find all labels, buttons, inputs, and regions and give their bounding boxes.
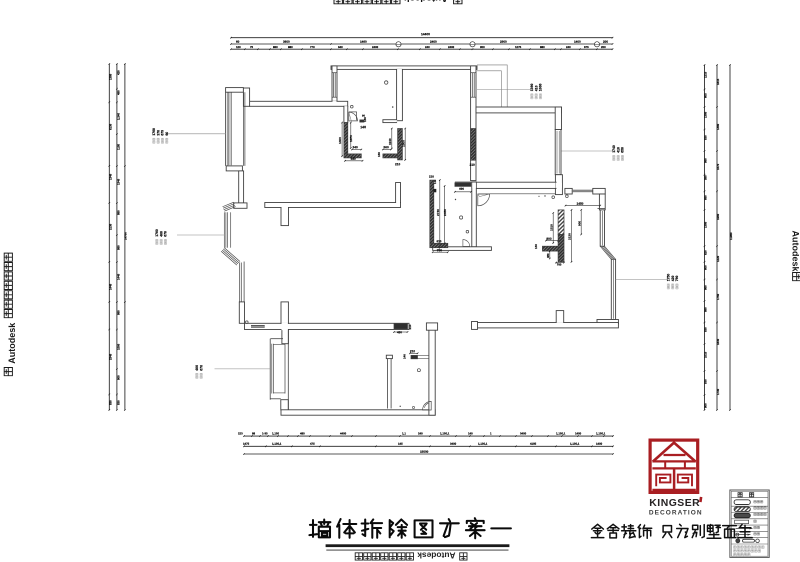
svg-text:1,130: 1,130 (272, 431, 279, 435)
svg-text:120: 120 (236, 45, 241, 49)
svg-text:1380: 1380 (716, 123, 720, 130)
svg-text:Autodesk: Autodesk (791, 231, 800, 273)
svg-text:2130: 2130 (109, 223, 113, 230)
svg-text:900: 900 (480, 45, 485, 49)
svg-text:475: 475 (310, 442, 315, 446)
svg-text:800: 800 (546, 237, 551, 241)
svg-text:KINGSER: KINGSER (649, 498, 700, 509)
svg-text:2450: 2450 (443, 209, 447, 216)
svg-text:1450: 1450 (576, 202, 583, 206)
svg-text:200: 200 (601, 45, 606, 49)
svg-text:1140: 1140 (388, 138, 392, 145)
svg-text:130: 130 (363, 117, 367, 122)
svg-text:Autodesk: Autodesk (404, 0, 448, 4)
svg-text:1,130,1: 1,130,1 (570, 442, 580, 446)
svg-text:1570: 1570 (716, 163, 720, 170)
svg-text:DECORATION: DECORATION (649, 510, 703, 517)
svg-text:1150: 1150 (116, 143, 120, 150)
svg-text:340: 340 (352, 145, 357, 149)
svg-text:2400: 2400 (430, 40, 437, 44)
svg-text:60: 60 (236, 40, 240, 44)
svg-text:15000: 15000 (420, 450, 429, 454)
svg-text:750: 750 (437, 248, 442, 252)
svg-text:140: 140 (403, 354, 407, 359)
svg-text:Autodesk: Autodesk (7, 322, 17, 364)
svg-text:1-30: 1-30 (262, 431, 268, 435)
svg-text:880: 880 (116, 210, 120, 215)
svg-text:1830: 1830 (716, 338, 720, 345)
svg-text:605: 605 (704, 93, 708, 98)
svg-text:590: 590 (704, 175, 708, 180)
svg-text:860: 860 (273, 45, 278, 49)
svg-text:3400: 3400 (450, 442, 457, 446)
svg-text:1,130,1: 1,130,1 (440, 431, 450, 435)
svg-text:60: 60 (165, 132, 169, 136)
svg-text:1400: 1400 (575, 431, 582, 435)
svg-text:830: 830 (116, 400, 120, 405)
svg-text:3600: 3600 (283, 40, 290, 44)
svg-text:480: 480 (546, 253, 550, 258)
svg-text:420: 420 (116, 70, 120, 75)
svg-text:1750: 1750 (716, 293, 720, 300)
svg-text:1815: 1815 (716, 78, 720, 85)
svg-text:690: 690 (459, 187, 464, 191)
svg-text:1400: 1400 (596, 442, 603, 446)
svg-text:1220: 1220 (716, 255, 720, 262)
svg-text:880: 880 (288, 45, 293, 49)
svg-text:2900: 2900 (500, 40, 507, 44)
svg-text:1400: 1400 (574, 40, 581, 44)
svg-text:Autodesk: Autodesk (417, 551, 456, 561)
svg-text:2400: 2400 (448, 45, 455, 49)
svg-text:1340: 1340 (109, 173, 113, 180)
svg-text:240: 240 (425, 45, 430, 49)
svg-text:210: 210 (429, 175, 434, 179)
svg-text:140: 140 (360, 125, 366, 129)
svg-text:490: 490 (116, 90, 120, 95)
svg-text:1310: 1310 (549, 224, 553, 231)
svg-text:830: 830 (704, 135, 708, 140)
svg-text:140: 140 (433, 179, 437, 184)
svg-text:640: 640 (338, 45, 343, 49)
svg-text:480: 480 (300, 431, 305, 435)
svg-text:980: 980 (116, 310, 120, 315)
svg-text:1,130,1: 1,130,1 (596, 431, 606, 435)
svg-text:900: 900 (116, 375, 120, 380)
svg-text:880: 880 (540, 45, 545, 49)
svg-text:2,240: 2,240 (116, 113, 120, 120)
svg-text:1380: 1380 (109, 73, 113, 80)
svg-text:1730: 1730 (716, 388, 720, 395)
svg-text:1,130,1: 1,130,1 (556, 431, 566, 435)
svg-text:620: 620 (704, 250, 708, 255)
svg-text:223: 223 (238, 431, 243, 435)
svg-text:610: 610 (436, 239, 441, 243)
svg-text:14400: 14400 (421, 32, 430, 36)
svg-text:1010: 1010 (704, 351, 708, 358)
svg-text:1370: 1370 (349, 135, 353, 142)
svg-text:1460: 1460 (360, 40, 367, 44)
svg-text:145: 145 (398, 442, 403, 446)
svg-text:650: 650 (621, 147, 625, 153)
svg-text:680: 680 (351, 157, 356, 161)
svg-text:210: 210 (395, 162, 400, 166)
svg-text:1,130,1: 1,130,1 (272, 442, 282, 446)
svg-text:1475: 1475 (243, 442, 250, 446)
svg-text:1,1: 1,1 (402, 431, 406, 435)
svg-text:140: 140 (468, 431, 473, 435)
svg-text:1380: 1380 (704, 111, 708, 118)
svg-text:770: 770 (310, 45, 315, 49)
svg-text:11960: 11960 (729, 232, 733, 240)
svg-text:1210: 1210 (704, 71, 708, 78)
svg-text:830: 830 (109, 400, 113, 405)
svg-text:600: 600 (704, 265, 708, 270)
svg-text:680: 680 (704, 195, 708, 200)
svg-text:1960: 1960 (716, 213, 720, 220)
svg-text:140: 140 (534, 244, 538, 249)
svg-text:3400: 3400 (520, 431, 527, 435)
svg-text:2400: 2400 (372, 45, 379, 49)
svg-text:1340: 1340 (116, 178, 120, 185)
svg-text:980: 980 (116, 245, 120, 250)
svg-text:560: 560 (383, 145, 388, 149)
svg-text:1000: 1000 (539, 84, 543, 92)
svg-text:830: 830 (704, 327, 708, 332)
svg-text:88: 88 (252, 431, 256, 435)
svg-text:1300: 1300 (402, 140, 406, 147)
svg-text:890: 890 (704, 307, 708, 312)
svg-text:1380: 1380 (704, 221, 708, 228)
svg-text:4195: 4195 (530, 442, 537, 446)
svg-text:980: 980 (704, 158, 708, 163)
svg-text:860: 860 (704, 285, 708, 290)
svg-text:75: 75 (250, 45, 254, 49)
svg-text:210: 210 (408, 324, 412, 329)
svg-text:1275: 1275 (515, 45, 522, 49)
svg-text:240: 240 (418, 431, 423, 435)
svg-text:1440: 1440 (116, 273, 120, 280)
svg-text:210: 210 (470, 163, 475, 167)
svg-text:2740: 2740 (436, 209, 440, 216)
svg-text:6130: 6130 (109, 123, 113, 130)
svg-text:700: 700 (557, 263, 562, 267)
svg-text:14700: 14700 (124, 232, 128, 240)
svg-text:1440: 1440 (109, 283, 113, 290)
svg-text:900: 900 (577, 221, 581, 226)
svg-text:1500: 1500 (116, 343, 120, 350)
svg-text:1,130,1: 1,130,1 (478, 442, 488, 446)
svg-text:670: 670 (164, 231, 168, 237)
svg-text:670: 670 (199, 365, 203, 371)
svg-text:240: 240 (566, 45, 571, 49)
svg-text:675: 675 (584, 45, 589, 49)
svg-text:4400: 4400 (340, 431, 347, 435)
svg-text:900: 900 (704, 403, 708, 408)
svg-text:930: 930 (704, 379, 708, 384)
svg-text:1400: 1400 (338, 137, 342, 144)
svg-text:790: 790 (675, 276, 679, 282)
svg-text:2130: 2130 (568, 233, 572, 240)
svg-text:2340: 2340 (109, 353, 113, 360)
svg-text:130: 130 (377, 152, 381, 157)
svg-text:200: 200 (603, 40, 608, 44)
